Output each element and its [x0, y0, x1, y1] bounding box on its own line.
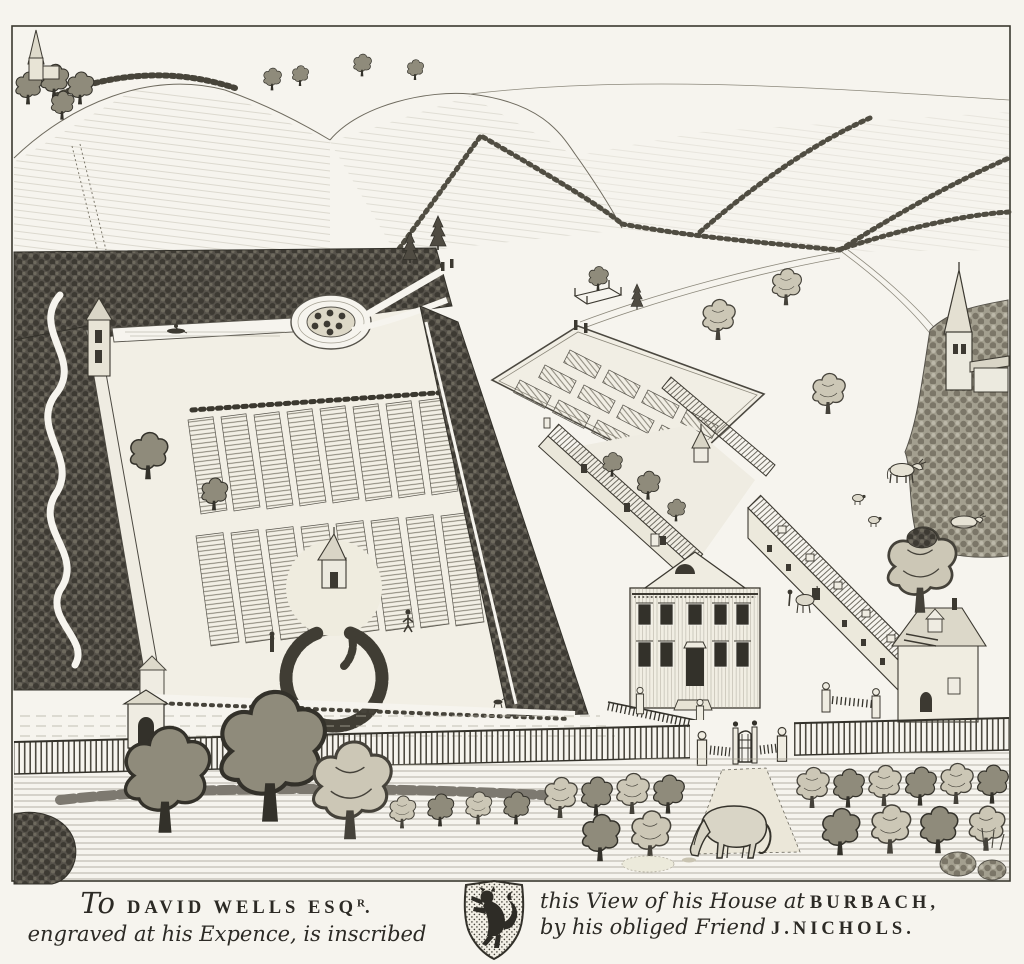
dedication-left-block: ToDAVID WELLS ESQR. engraved at his Expe…	[6, 882, 448, 947]
entrance-steps	[674, 700, 712, 710]
estate-name: BURBACH,	[810, 893, 939, 913]
dedication-line-3: this View of his House at BURBACH,	[540, 888, 1018, 914]
oval-island-pond	[291, 295, 371, 349]
dedication-caption: ToDAVID WELLS ESQR. engraved at his Expe…	[0, 882, 1024, 964]
engraving-artwork	[0, 0, 1024, 964]
dedicatee-name: DAVID WELLS ESQ	[127, 898, 357, 918]
dedication-line-1: ToDAVID WELLS ESQR.	[6, 886, 448, 920]
dedication-line-2: engraved at his Expence, is inscribed	[6, 921, 448, 947]
dedicatee-name-superscript: R	[357, 898, 365, 910]
courtyard-pump	[651, 534, 659, 546]
dedication-to: To	[80, 886, 115, 920]
field-bush	[907, 528, 937, 548]
engraver-name: J.NICHOLS.	[771, 919, 915, 939]
lion-rampant-shield-icon	[458, 878, 530, 962]
engraving-plate: Vol.IV. Pl.LXVIII. p.461.	[0, 0, 1024, 964]
heraldic-shield	[458, 878, 530, 964]
sundial-pedestal	[270, 636, 274, 652]
dedication-right-block: this View of his House at BURBACH, by hi…	[540, 882, 1018, 941]
dedication-line-4: by his obliged Friend J.NICHOLS.	[540, 914, 1018, 940]
